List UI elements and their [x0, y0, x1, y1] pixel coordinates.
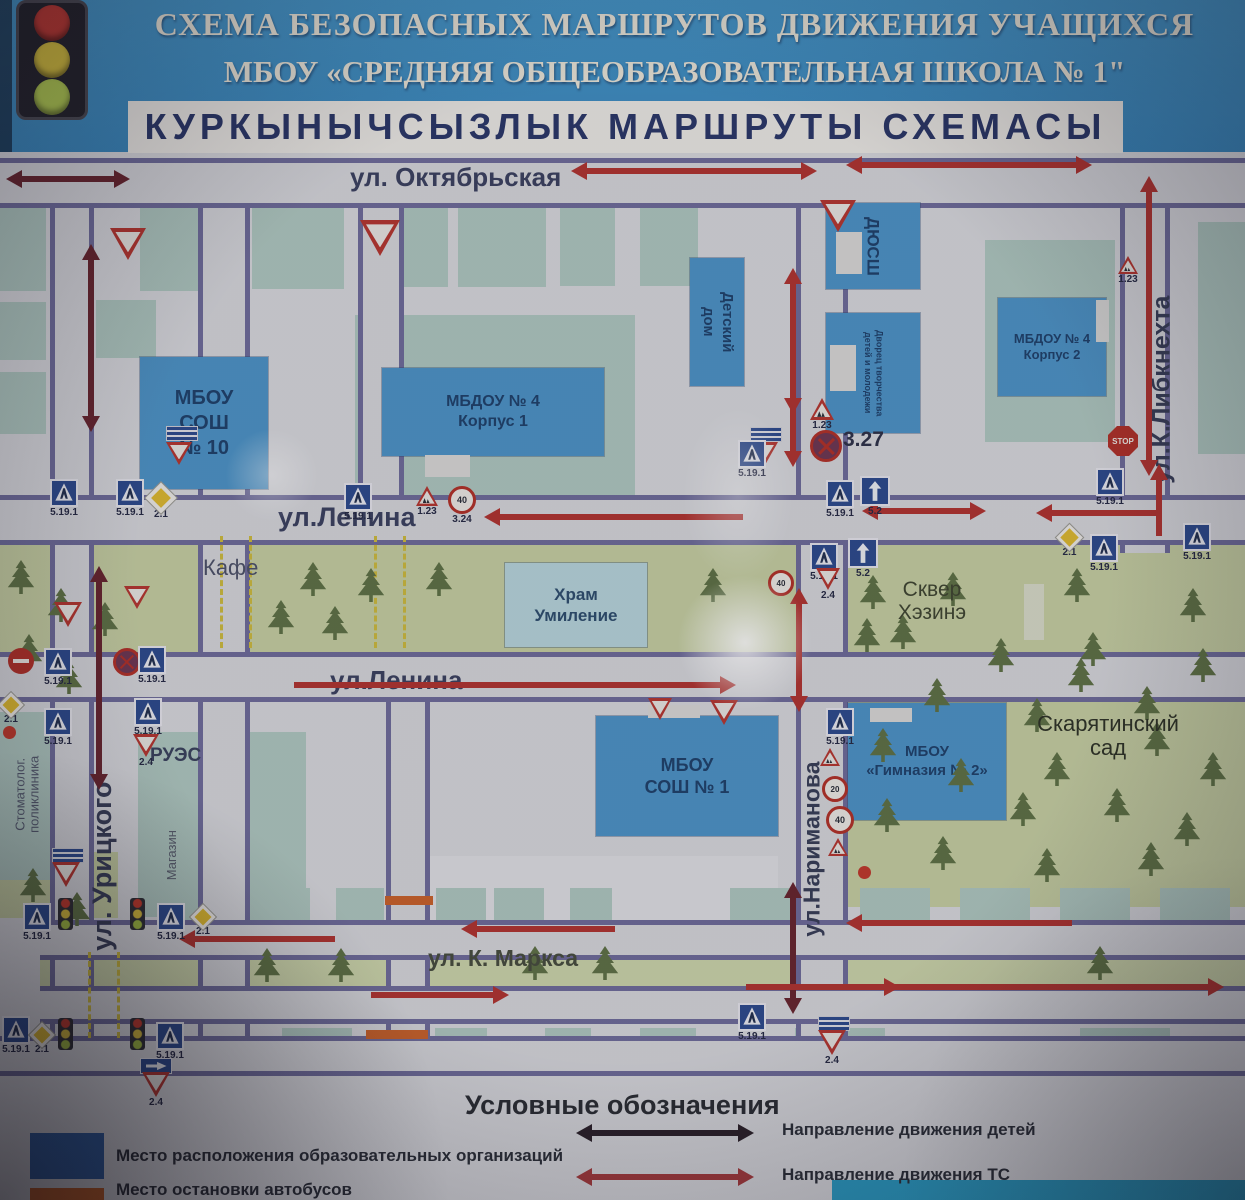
children-route-arrow	[20, 176, 116, 182]
sign-yield: 2.4	[133, 734, 159, 768]
speed40-icon: 40	[826, 806, 854, 834]
crosswalk-icon	[344, 483, 372, 511]
speed40-icon: 40	[448, 486, 476, 514]
sign-stripes	[818, 1016, 850, 1031]
oneway-icon	[860, 476, 890, 506]
vehicle-route-arrow	[860, 920, 1072, 926]
vehicle-route-arrow	[790, 282, 796, 400]
crosswalk-icon	[826, 708, 854, 736]
stripes-icon	[52, 848, 84, 863]
building-sosh-1: МБОУ СОШ № 1	[596, 716, 778, 836]
yield-icon	[710, 700, 738, 725]
vehicle-route-arrow	[193, 936, 335, 942]
city-block	[400, 207, 448, 287]
sign-children: 1.23	[416, 486, 438, 517]
sign-code-label: 5.19.1	[826, 509, 854, 519]
crosswalk-icon	[738, 1003, 766, 1031]
sign-children: 1.23	[810, 398, 834, 431]
sign-speed40: 403.24	[448, 486, 476, 525]
sign-crosswalk: 5.19.1	[1183, 523, 1211, 562]
children-route-arrow	[96, 580, 102, 776]
vehicle-route-arrow	[475, 926, 615, 932]
sign-crosswalk: 5.19.1	[826, 708, 854, 747]
stripes-icon	[166, 426, 198, 441]
city-block	[0, 372, 46, 434]
sign-crosswalk: 5.19.1	[1096, 468, 1124, 507]
traffic-light-icon	[58, 1018, 73, 1050]
city-block	[336, 888, 384, 920]
yield-icon	[54, 602, 82, 627]
city-block	[0, 205, 46, 291]
stripes-icon	[818, 1016, 850, 1031]
sign-traffic-light	[58, 898, 73, 930]
vehicle-route-arrow	[1050, 510, 1160, 516]
children-icon	[416, 486, 438, 506]
yield-icon	[816, 568, 840, 590]
yield-icon	[133, 734, 159, 757]
children-icon	[1118, 256, 1138, 274]
children-route-arrow	[88, 258, 94, 418]
building-annex	[870, 708, 912, 722]
city-block	[494, 888, 544, 920]
sign-code-label: 5.2	[868, 507, 882, 517]
building-annex	[830, 345, 856, 391]
sign-traffic-light	[130, 1018, 145, 1050]
map-label: Сквер Хэзинэ	[872, 578, 992, 624]
sign-crosswalk: 5.19.1	[738, 440, 766, 479]
traffic-light-icon	[130, 1018, 145, 1050]
legend-bus-label: Место остановки автобусов	[116, 1180, 516, 1200]
sign-children: 1.23	[1118, 256, 1138, 285]
speed20-icon: 20	[822, 776, 848, 802]
legend-edu-label: Место расположения образовательных орган…	[116, 1146, 676, 1166]
sign-code-label: 5.19.1	[44, 737, 72, 747]
building-label: МБДОУ № 4 Корпус 1	[446, 392, 540, 432]
children-direction-arrow	[590, 1130, 740, 1136]
sign-yield	[648, 698, 672, 720]
oneway-icon	[848, 538, 878, 568]
sign-stripes	[166, 426, 198, 441]
sign-crosswalk: 5.19.1	[44, 708, 72, 747]
sign-code-label: 3.24	[452, 515, 471, 525]
sign-children	[820, 748, 840, 766]
yield-icon	[166, 442, 192, 465]
crosswalk-icon	[1096, 468, 1124, 496]
legend-edu-swatch	[30, 1133, 104, 1179]
main-road-icon	[1056, 524, 1083, 551]
sign-crosswalk: 5.19.1	[138, 646, 166, 685]
children-icon	[828, 838, 848, 856]
crosswalk-icon	[826, 480, 854, 508]
sign-code-label: 5.19.1	[23, 932, 51, 942]
legend-vehicle-label: Направление движения ТС	[782, 1165, 1202, 1185]
vehicle-route-arrow	[876, 508, 972, 514]
vehicle-route-arrow	[746, 984, 886, 990]
building-detsky-dom: Детский дом	[690, 258, 744, 386]
city-block	[252, 207, 344, 289]
sign-crosswalk: 5.19.1	[738, 1003, 766, 1042]
vehicle-route-arrow	[498, 514, 743, 520]
sign-yield	[54, 602, 82, 627]
building-sosh-10: МБОУ СОШ № 10	[140, 357, 268, 489]
bus-stop-marker	[385, 896, 433, 905]
crosswalk-icon	[116, 479, 144, 507]
map-label: ул.Нариманова	[799, 757, 824, 937]
crosswalk-icon	[738, 440, 766, 468]
sign-no-stop	[113, 648, 141, 676]
crosswalk-icon	[44, 708, 72, 736]
sign-code-label: 5.19.1	[116, 508, 144, 518]
building-label: Храм Умиление	[535, 584, 618, 627]
city-block	[1160, 888, 1230, 920]
map-label: ул. Урицкого	[88, 779, 118, 951]
map-label: ул. К. Маркса	[428, 946, 578, 971]
building-annex	[1096, 300, 1109, 342]
street-south-street	[0, 1036, 1245, 1076]
vehicle-route-arrow	[860, 162, 1078, 168]
yield-icon	[820, 200, 856, 232]
sign-crosswalk: 5.19.1	[50, 479, 78, 518]
building-annex	[425, 455, 470, 477]
yield-icon	[142, 1072, 170, 1097]
sign-children	[828, 838, 848, 856]
map-label: Кафе	[203, 556, 258, 580]
no-stop-icon	[113, 648, 141, 676]
city-block	[1198, 222, 1245, 454]
crosswalk-dashes	[220, 536, 252, 648]
sign-yield	[52, 862, 80, 887]
sign-code-label: 5.19.1	[138, 675, 166, 685]
sign-oneway: 5.2	[860, 476, 890, 517]
sign-yield	[360, 220, 400, 256]
map-label: 3.27	[843, 428, 884, 451]
main-road-icon	[190, 904, 215, 929]
vehicle-route-arrow	[1146, 190, 1152, 462]
sign-code-label: 5.19.1	[738, 1032, 766, 1042]
street-k-marksa-south	[40, 986, 1245, 1024]
crosswalk-icon	[810, 543, 838, 571]
crosswalk-icon	[156, 1022, 184, 1050]
sign-speed20: 20	[822, 776, 848, 802]
crosswalk-icon	[1090, 534, 1118, 562]
city-block	[0, 302, 46, 360]
sign-code-label: 5.19.1	[738, 469, 766, 479]
sign-speed40: 40	[768, 570, 794, 596]
sign-yield: 2.4	[818, 1030, 846, 1066]
sign-code-label: 5.19.1	[44, 677, 72, 687]
bus-stop-marker	[366, 1030, 428, 1039]
sign-main-road: 2.1	[33, 1026, 51, 1055]
sign-crosswalk: 5.19.1	[157, 903, 185, 942]
sign-code-label: 5.19.1	[2, 1045, 30, 1055]
sign-code-label: 2.4	[825, 1056, 839, 1066]
map-label: Стоматолог. поликлиника	[14, 708, 43, 880]
crosswalk-icon	[2, 1016, 30, 1044]
map-label: ул.К.Либкнехта	[1148, 296, 1176, 484]
sign-code-label: 5.2	[856, 569, 870, 579]
legend-bus-swatch	[30, 1188, 104, 1200]
city-block	[96, 300, 156, 358]
city-block	[458, 207, 546, 287]
sign-stop: STOP	[1108, 426, 1138, 456]
map-label: Магазин	[165, 805, 179, 905]
street-lenina-2	[0, 652, 1245, 702]
yield-icon	[52, 862, 80, 887]
street-mid-north	[358, 158, 404, 535]
sign-code-label: 2.4	[139, 758, 153, 768]
sign-traffic-light	[58, 1018, 73, 1050]
sign-code-label: 5.19.1	[826, 737, 854, 747]
traffic-light-icon	[130, 898, 145, 930]
main-road-icon	[29, 1022, 54, 1047]
no-stop-icon	[810, 430, 842, 462]
city-block	[1060, 888, 1130, 920]
crosswalk-icon	[1183, 523, 1211, 551]
sign-code-label: 1.23	[417, 507, 436, 517]
sign-code-label: 5.19.1	[50, 508, 78, 518]
building-label: ДЮСШ	[862, 217, 883, 276]
sign-main-road: 2.1	[150, 487, 172, 520]
map-label: ул. Октябрьская	[350, 163, 561, 192]
building-label: Детский дом	[698, 292, 736, 352]
sign-main-road: 2.1	[2, 696, 20, 725]
sign-yield: 2.4	[816, 568, 840, 601]
city-block	[730, 888, 790, 920]
yield-icon	[818, 1030, 846, 1055]
sign-code-label: 2.4	[821, 591, 835, 601]
yield-icon	[360, 220, 400, 256]
yield-icon	[110, 228, 146, 260]
legend-children-label: Направление движения детей	[782, 1120, 1202, 1140]
legend-title: Условные обозначения	[465, 1090, 780, 1121]
crosswalk-icon	[44, 648, 72, 676]
building-label: Дворец творчества детей и молодежи	[862, 330, 885, 416]
sign-code-label: 5.19.1	[157, 932, 185, 942]
sign-code-label: 5.19.1	[1183, 552, 1211, 562]
sign-code-label: 5.19.1	[1096, 497, 1124, 507]
city-block	[560, 208, 615, 286]
vehicle-route-arrow	[371, 992, 495, 998]
sign-code-label: 1.23	[1118, 275, 1137, 285]
city-block	[860, 888, 930, 920]
city-block	[436, 888, 486, 920]
speed40-icon: 40	[768, 570, 794, 596]
poster-photo: СХЕМА БЕЗОПАСНЫХ МАРШРУТОВ ДВИЖЕНИЯ УЧАЩ…	[0, 0, 1245, 1200]
city-block	[570, 888, 612, 920]
children-icon	[810, 398, 834, 420]
vehicle-route-arrow	[790, 398, 796, 453]
sign-crosswalk: 5.19.1	[116, 479, 144, 518]
traffic-light-icon	[58, 898, 73, 930]
sign-no-entry	[8, 648, 34, 674]
vehicle-route-arrow	[294, 682, 722, 688]
sign-code-label: 5.19.1	[344, 512, 372, 522]
crosswalk-icon	[50, 479, 78, 507]
sign-crosswalk: 5.19.1	[2, 1016, 30, 1055]
route-map: МБОУ СОШ № 10МБДОУ № 4 Корпус 1Детский д…	[0, 0, 1245, 1200]
building-mbdou-4-k2: МБДОУ № 4 Корпус 2	[998, 298, 1106, 396]
vehicle-route-arrow	[585, 168, 803, 174]
map-label: ул.Ленина	[330, 666, 462, 695]
sign-yield	[710, 700, 738, 725]
sign-main-road: 2.1	[1060, 528, 1079, 558]
sign-crosswalk: 5.19.1	[156, 1022, 184, 1061]
sign-yield: 2.4	[142, 1072, 170, 1108]
city-block	[1024, 584, 1044, 640]
building-mbdou-4-k1: МБДОУ № 4 Корпус 1	[382, 368, 604, 456]
sign-crosswalk: 5.19.1	[344, 483, 372, 522]
sign-code-label: 5.19.1	[1090, 563, 1118, 573]
vehicle-direction-arrow	[590, 1174, 740, 1180]
sign-no-stop	[810, 430, 842, 462]
sign-yield	[110, 228, 146, 260]
crosswalk-icon	[138, 646, 166, 674]
sign-main-road: 2.1	[194, 908, 212, 937]
sign-yield	[820, 200, 856, 232]
poster-subtitle-tatar: КУРКЫНЫЧСЫЗЛЫК МАРШРУТЫ СХЕМАСЫ	[128, 101, 1123, 153]
vehicle-route-arrow	[1156, 478, 1162, 536]
building-hram-umilenie: Храм Умиление	[505, 563, 647, 647]
crosswalk-icon	[134, 698, 162, 726]
crosswalk-icon	[157, 903, 185, 931]
vehicle-route-arrow	[878, 984, 1210, 990]
yield-icon	[124, 586, 150, 609]
sign-crosswalk: 5.19.1	[44, 648, 72, 687]
sign-crosswalk: 5.19.1	[134, 698, 162, 737]
sign-traffic-light	[130, 898, 145, 930]
sign-stripes	[52, 848, 84, 863]
bus-stop-dot	[858, 866, 871, 879]
sign-speed40: 40	[826, 806, 854, 834]
building-label: МБДОУ № 4 Корпус 2	[1014, 331, 1090, 364]
crosswalk-icon	[23, 903, 51, 931]
children-icon	[820, 748, 840, 766]
stop-icon: STOP	[1108, 426, 1138, 456]
no-entry-icon	[8, 648, 34, 674]
yield-icon	[648, 698, 672, 720]
vehicle-route-arrow	[796, 602, 802, 698]
sign-oneway: 5.2	[848, 538, 878, 579]
building-annex	[836, 232, 862, 274]
sign-yield	[166, 442, 192, 465]
sign-yield	[124, 586, 150, 609]
sign-code-label: 2.4	[149, 1098, 163, 1108]
building-label: МБОУ СОШ № 1	[645, 754, 730, 799]
sign-crosswalk: 5.19.1	[23, 903, 51, 942]
sign-crosswalk: 5.19.1	[826, 480, 854, 519]
crosswalk-dashes	[88, 952, 120, 1038]
main-road-icon	[145, 482, 176, 513]
sign-crosswalk: 5.19.1	[1090, 534, 1118, 573]
city-block	[250, 888, 310, 920]
map-label: Скарятинский сад	[1018, 712, 1198, 760]
city-block	[960, 888, 1030, 920]
